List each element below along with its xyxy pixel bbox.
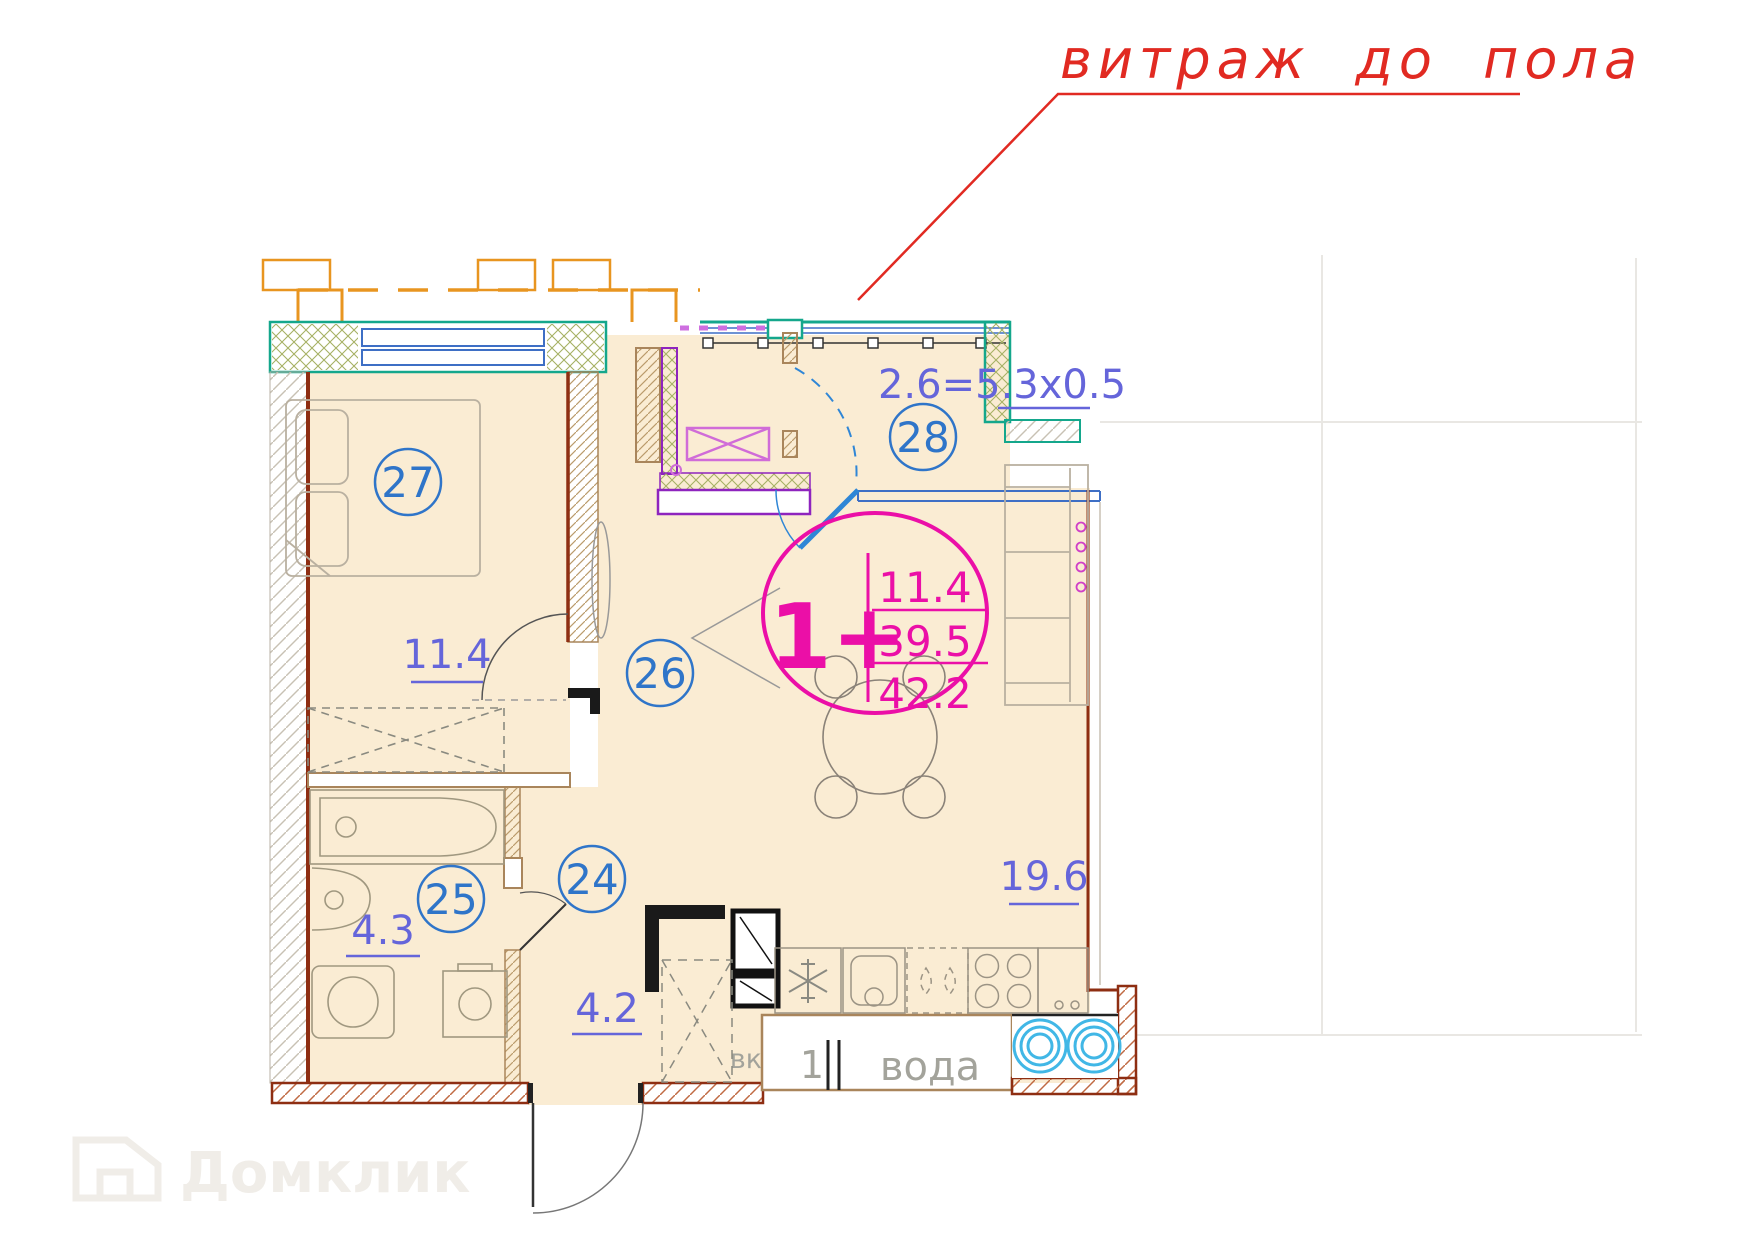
- floor-plan-page: Домклик витраж до пола: [0, 0, 1754, 1240]
- watermark-label: Домклик: [180, 1141, 470, 1206]
- water-box: 1 вода: [762, 1015, 1012, 1090]
- utility-cabinet: [733, 911, 778, 1006]
- water-label: вода: [880, 1044, 980, 1090]
- vk-label: вк: [730, 1044, 762, 1075]
- balcony-above-marks: [263, 260, 700, 322]
- svg-text:19.6: 19.6: [999, 854, 1088, 900]
- domclick-logo-icon: [76, 1140, 158, 1198]
- bedroom-window: [362, 329, 544, 365]
- svg-text:25: 25: [424, 875, 477, 924]
- svg-text:26: 26: [633, 649, 686, 698]
- svg-text:4.3: 4.3: [351, 908, 415, 954]
- entry-door: [533, 1103, 643, 1213]
- left-exterior-wall: [270, 372, 308, 1083]
- svg-text:24: 24: [565, 855, 618, 904]
- domclick-watermark: Домклик: [76, 1140, 470, 1206]
- floor-plan-drawing: Домклик витраж до пола: [0, 0, 1754, 1240]
- section-mark-label: 1: [800, 1043, 824, 1087]
- bedroom-exterior-wall: [270, 322, 606, 372]
- svg-text:4.2: 4.2: [575, 986, 639, 1032]
- glazing-annotation: витраж до пола: [858, 28, 1643, 300]
- unit-total-area: 42.2: [878, 669, 972, 718]
- svg-text:11.4: 11.4: [402, 632, 491, 678]
- svg-text:27: 27: [381, 458, 434, 507]
- glazing-leader-line: [858, 94, 1520, 300]
- unit-area-no-balcony: 39.5: [878, 617, 972, 666]
- construction-lines: [1100, 255, 1642, 1035]
- balcony-dimension: 2.6=5.3х0.5: [878, 362, 1126, 408]
- svg-text:28: 28: [896, 413, 949, 462]
- unit-living-area: 11.4: [878, 563, 972, 612]
- glazing-annotation-text: витраж до пола: [1060, 28, 1643, 91]
- balcony-slab-edge: [1005, 420, 1080, 442]
